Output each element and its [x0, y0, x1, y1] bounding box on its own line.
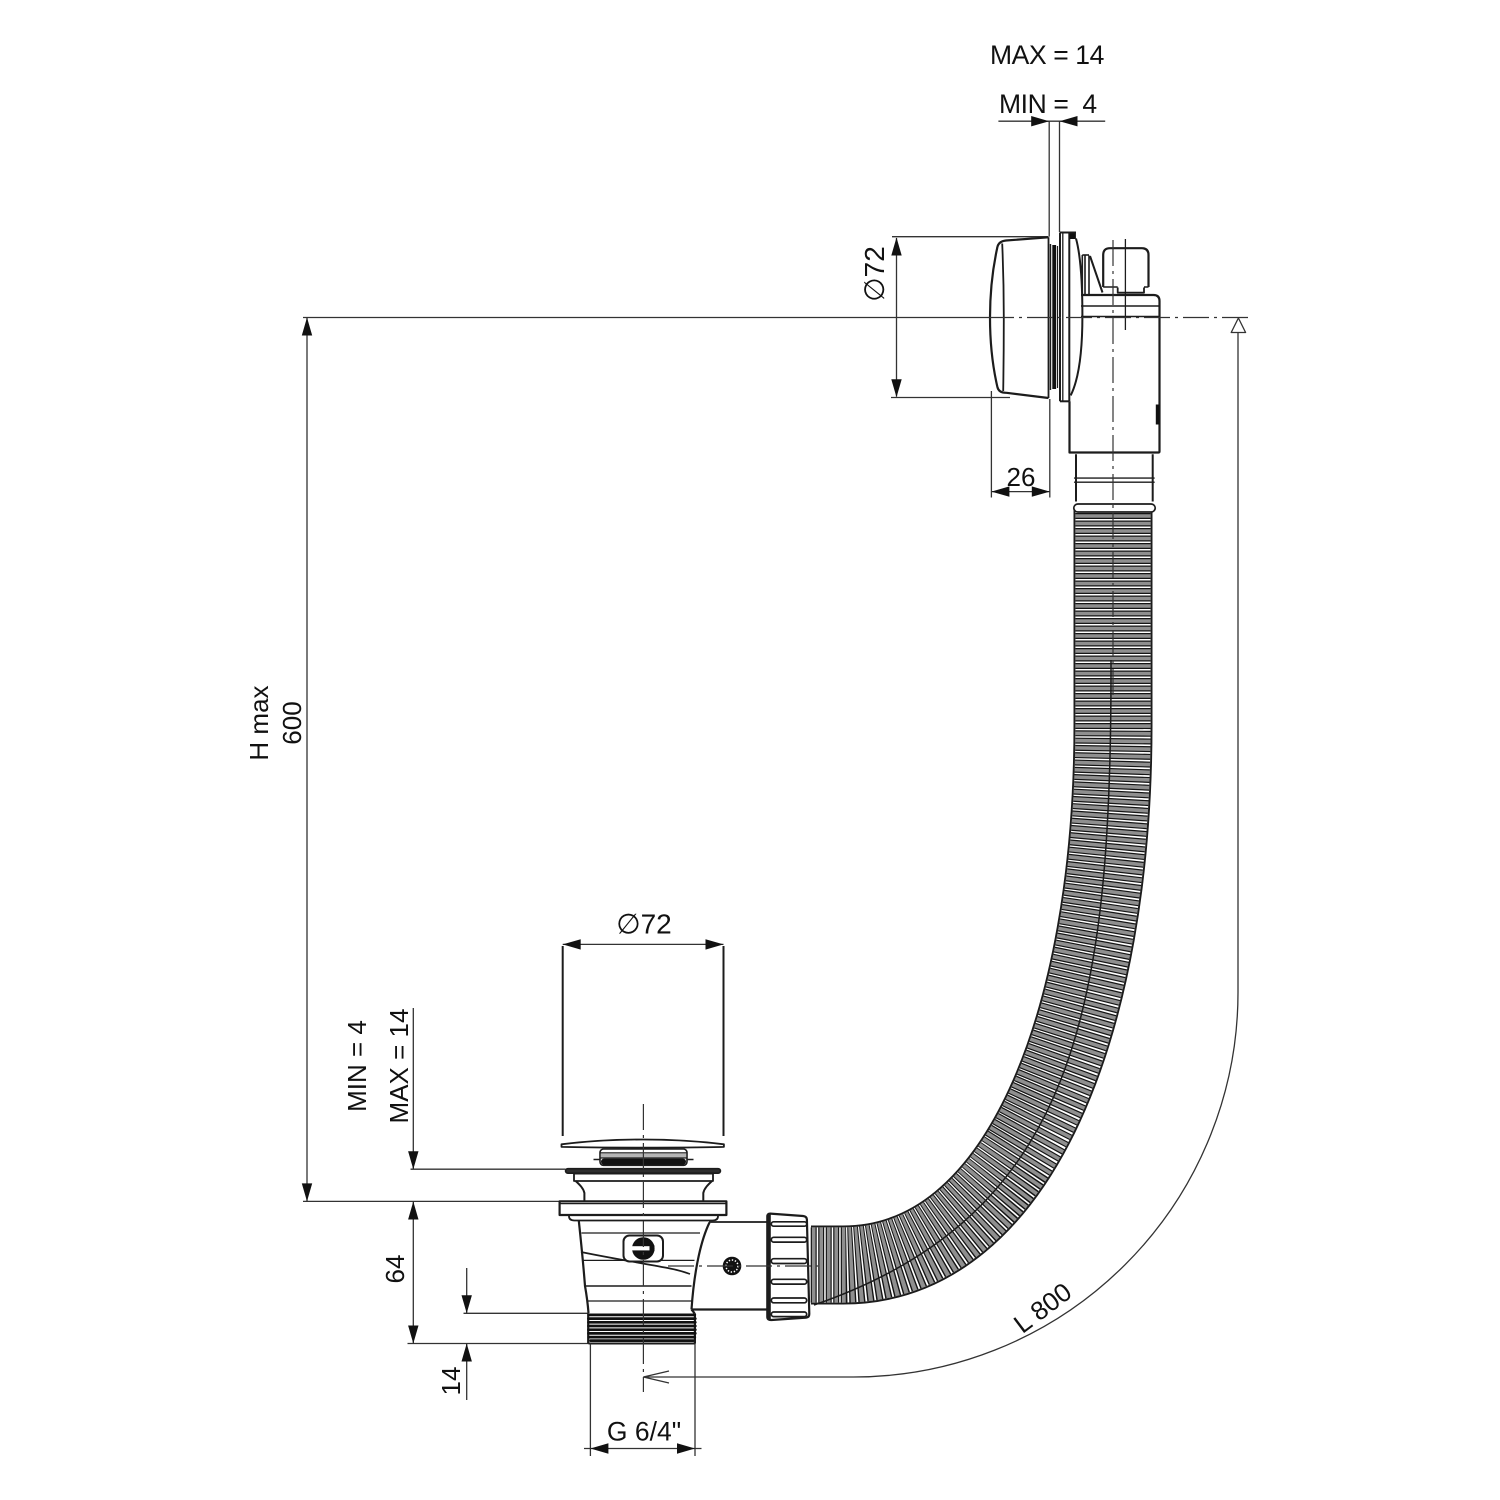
- svg-text:MIN = 4: MIN = 4: [999, 89, 1097, 119]
- svg-text:H max: H max: [244, 685, 274, 760]
- svg-text:26: 26: [1007, 462, 1036, 492]
- svg-text:MAX = 14: MAX = 14: [990, 40, 1104, 70]
- svg-text:G 6/4": G 6/4": [607, 1417, 681, 1447]
- svg-text:600: 600: [277, 701, 307, 744]
- svg-text:14: 14: [436, 1367, 466, 1396]
- svg-text:64: 64: [380, 1255, 410, 1284]
- svg-text:MAX = 14: MAX = 14: [384, 1009, 414, 1124]
- svg-text:∅72: ∅72: [616, 909, 672, 940]
- svg-text:MIN = 4: MIN = 4: [342, 1020, 372, 1112]
- svg-text:∅72: ∅72: [859, 246, 890, 302]
